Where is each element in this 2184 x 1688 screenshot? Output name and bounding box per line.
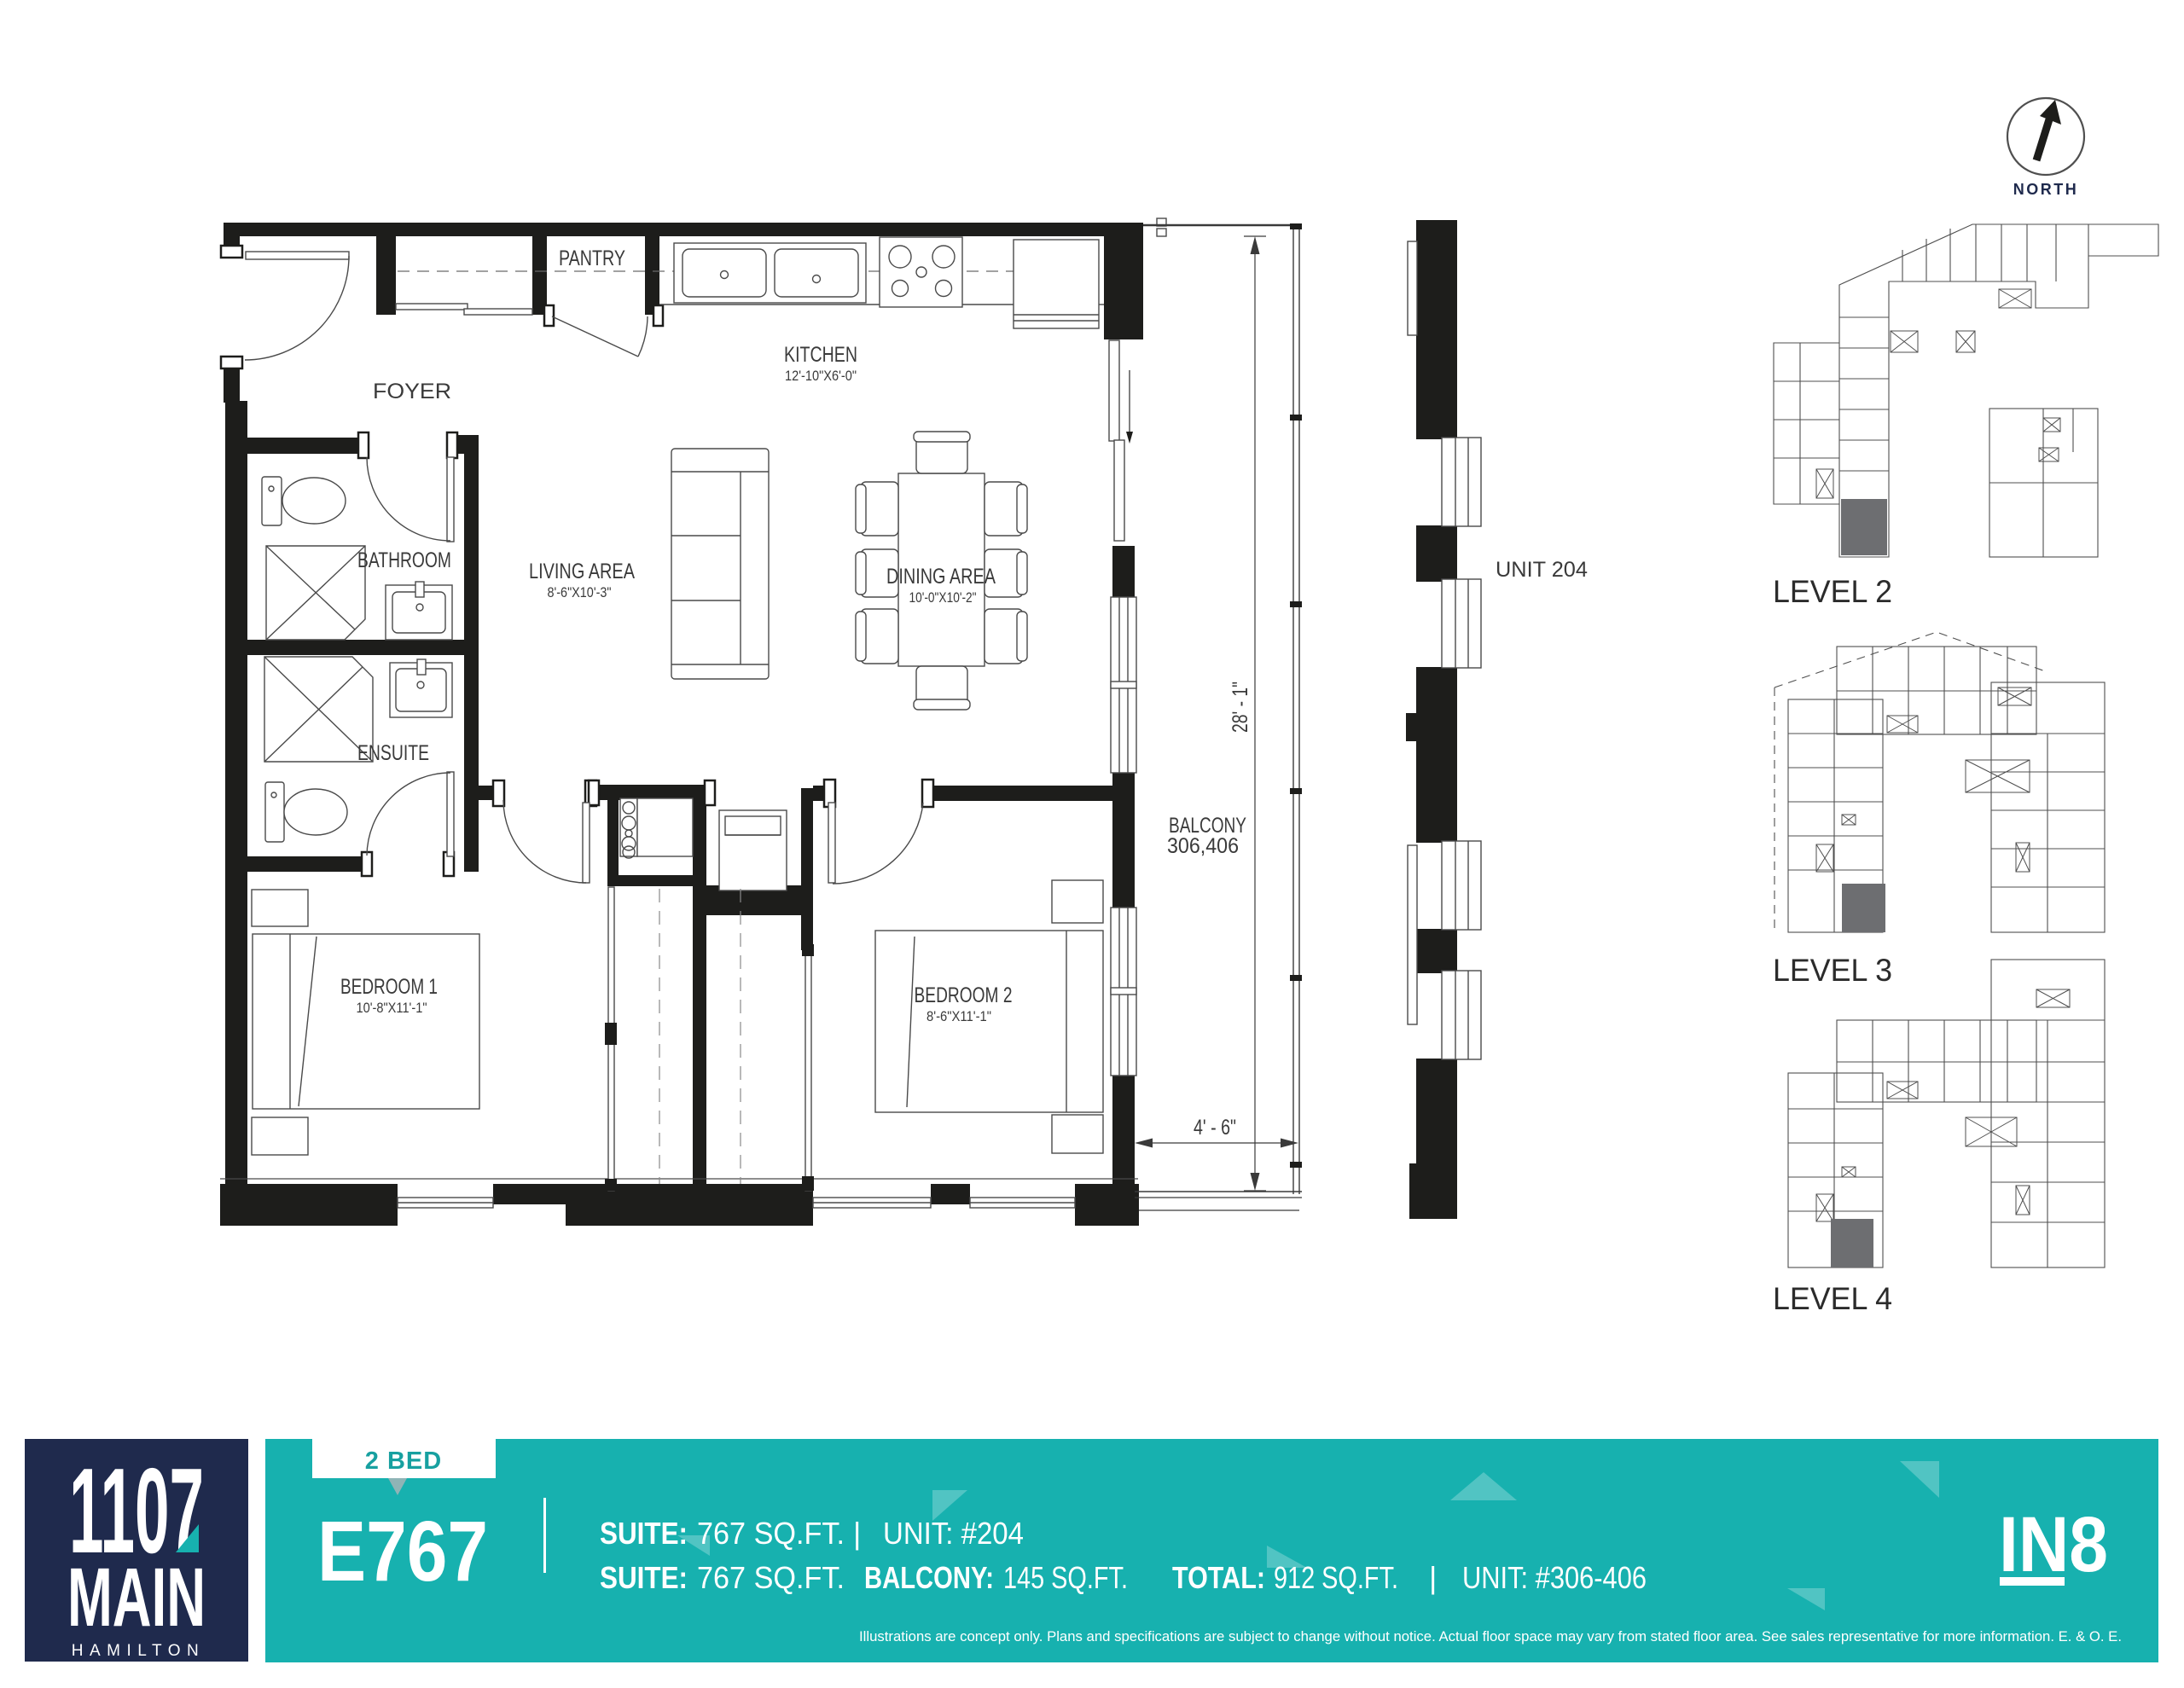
svg-text:SUITE:: SUITE:: [600, 1560, 688, 1595]
svg-text:|: |: [853, 1516, 861, 1551]
svg-text:HAMILTON: HAMILTON: [72, 1642, 205, 1660]
svg-text:E767: E767: [317, 1504, 488, 1599]
svg-text:UNIT: #204: UNIT: #204: [883, 1516, 1024, 1551]
svg-text:10'-0"X10'-2": 10'-0"X10'-2": [909, 589, 977, 606]
svg-text:SUITE:: SUITE:: [600, 1516, 688, 1551]
svg-text:12'-10"X6'-0": 12'-10"X6'-0": [785, 368, 857, 384]
svg-text:LEVEL 2: LEVEL 2: [1773, 574, 1892, 609]
svg-text:BALCONY:: BALCONY:: [864, 1560, 994, 1595]
svg-text:Illustrations are concept only: Illustrations are concept only. Plans an…: [859, 1629, 2122, 1644]
svg-text:UNIT 204: UNIT 204: [1496, 558, 1588, 582]
svg-text:LIVING AREA: LIVING AREA: [529, 560, 635, 583]
svg-text:TOTAL:: TOTAL:: [1172, 1560, 1265, 1595]
svg-text:10'-8"X11'-1": 10'-8"X11'-1": [357, 1000, 427, 1016]
svg-text:LEVEL 4: LEVEL 4: [1773, 1281, 1892, 1316]
svg-text:DINING AREA: DINING AREA: [886, 565, 996, 589]
svg-text:4' - 6": 4' - 6": [1194, 1116, 1236, 1140]
svg-text:306,406: 306,406: [1167, 834, 1239, 858]
svg-text:767 SQ.FT.: 767 SQ.FT.: [697, 1516, 845, 1551]
svg-text:IN8: IN8: [1999, 1501, 2108, 1588]
svg-text:FOYER: FOYER: [373, 380, 451, 403]
svg-text:NORTH: NORTH: [2013, 181, 2079, 198]
svg-text:912 SQ.FT.: 912 SQ.FT.: [1274, 1560, 1398, 1595]
svg-text:|: |: [1429, 1560, 1437, 1595]
svg-text:BEDROOM 1: BEDROOM 1: [340, 975, 438, 999]
svg-text:2 BED: 2 BED: [365, 1447, 442, 1475]
svg-text:BEDROOM 2: BEDROOM 2: [915, 983, 1013, 1007]
svg-text:767 SQ.FT.: 767 SQ.FT.: [697, 1560, 845, 1595]
svg-text:8'-6"X10'-3": 8'-6"X10'-3": [548, 584, 612, 600]
svg-text:145 SQ.FT.: 145 SQ.FT.: [1003, 1560, 1128, 1595]
svg-text:ENSUITE: ENSUITE: [357, 741, 429, 765]
svg-text:8'-6"X11'-1": 8'-6"X11'-1": [926, 1008, 991, 1024]
svg-text:PANTRY: PANTRY: [559, 247, 625, 270]
svg-text:BATHROOM: BATHROOM: [357, 548, 451, 572]
svg-text:UNIT: #306-406: UNIT: #306-406: [1462, 1560, 1647, 1595]
svg-text:28' - 1": 28' - 1": [1228, 682, 1252, 733]
svg-text:MAIN: MAIN: [67, 1551, 206, 1644]
svg-text:KITCHEN: KITCHEN: [784, 343, 857, 367]
svg-text:LEVEL 3: LEVEL 3: [1773, 953, 1892, 988]
